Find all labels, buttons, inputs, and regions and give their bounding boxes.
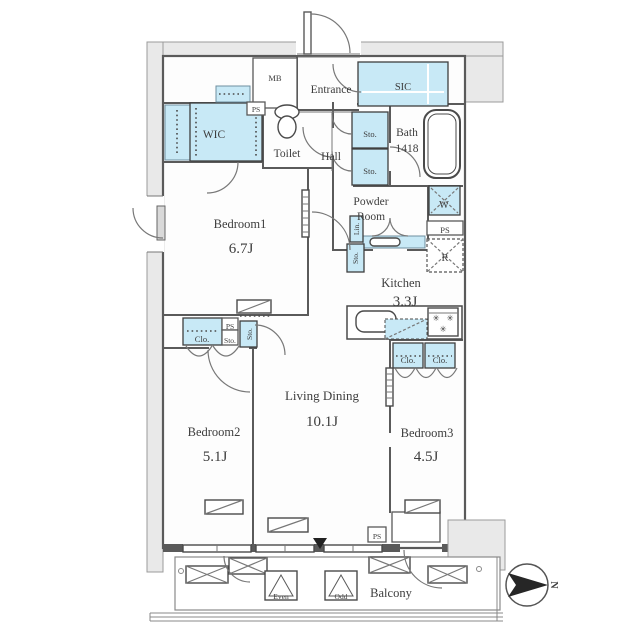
kitchen-counter <box>347 306 462 339</box>
room-label-wic: WIC <box>203 129 226 141</box>
floor-plan-svg: N MB Entrance SIC PS WIC Toilet Hall Sto… <box>0 0 640 640</box>
meter-box <box>253 58 297 108</box>
evac-even-label: Even <box>273 592 289 601</box>
room-label-powder-2: Room <box>357 211 385 223</box>
vanity-sink <box>370 238 400 246</box>
room-label-bedroom1: Bedroom1 <box>214 217 267 231</box>
washer-label: W <box>439 200 449 211</box>
room-label-bedroom3: Bedroom3 <box>401 426 454 440</box>
room-size-bedroom3: 4.5J <box>414 449 439 465</box>
compass-north-label: N <box>548 581 559 589</box>
room-label-bedroom2: Bedroom2 <box>188 425 241 439</box>
ps-label-4: PS <box>373 532 381 541</box>
refrigerator-label: R <box>441 253 448 264</box>
room-size-living-dining: 10.1J <box>306 414 338 430</box>
room-label-entrance: Entrance <box>311 84 352 96</box>
clo-label-2: Clo. <box>401 355 415 365</box>
clo-label-1: Clo. <box>195 334 209 344</box>
room-size-bedroom2: 5.1J <box>203 449 228 465</box>
stove-burner-icon: ✳ <box>439 324 447 334</box>
sto-label-3: Sto. <box>351 252 360 264</box>
left-casement-window <box>133 196 165 252</box>
room-label-toilet: Toilet <box>274 148 301 160</box>
stove-burner-icon: ✳ <box>432 313 440 323</box>
room-size-bath: 1418 <box>396 143 419 155</box>
room-label-sic: SIC <box>395 82 411 93</box>
room-size-bedroom1: 6.7J <box>229 241 254 257</box>
room-label-bath: Bath <box>396 127 418 139</box>
room-label-mb: MB <box>268 73 282 83</box>
bathtub <box>424 110 460 178</box>
ps-label-1: PS <box>252 105 260 114</box>
room-size-kitchen: 3.3J <box>393 294 418 310</box>
room-label-balcony: Balcony <box>370 586 412 600</box>
room-label-living-dining: Living Dining <box>285 388 360 403</box>
floor-plan-page: N MB Entrance SIC PS WIC Toilet Hall Sto… <box>0 0 640 640</box>
sto-label-2: Sto. <box>363 166 376 176</box>
linen-label: Lin. <box>352 223 361 235</box>
compass: N <box>506 564 559 606</box>
sto-label-5: Sto. <box>245 328 254 340</box>
ps-label-3: PS <box>226 322 234 331</box>
bedroom3-alcove <box>392 512 440 542</box>
room-label-powder-1: Powder <box>353 196 388 208</box>
entrance-door-leaf <box>304 12 311 54</box>
sto-label-1: Sto. <box>363 129 376 139</box>
ps-label-2: PS <box>440 225 450 235</box>
room-label-kitchen: Kitchen <box>381 276 421 290</box>
sto-label-4: Sto. <box>224 336 236 345</box>
balcony-area <box>150 550 503 621</box>
stove-burner-icon: ✳ <box>446 313 454 323</box>
evac-odd-label: Odd <box>335 592 348 601</box>
room-label-hall: Hall <box>321 151 341 163</box>
clo-label-3: Clo. <box>433 355 447 365</box>
